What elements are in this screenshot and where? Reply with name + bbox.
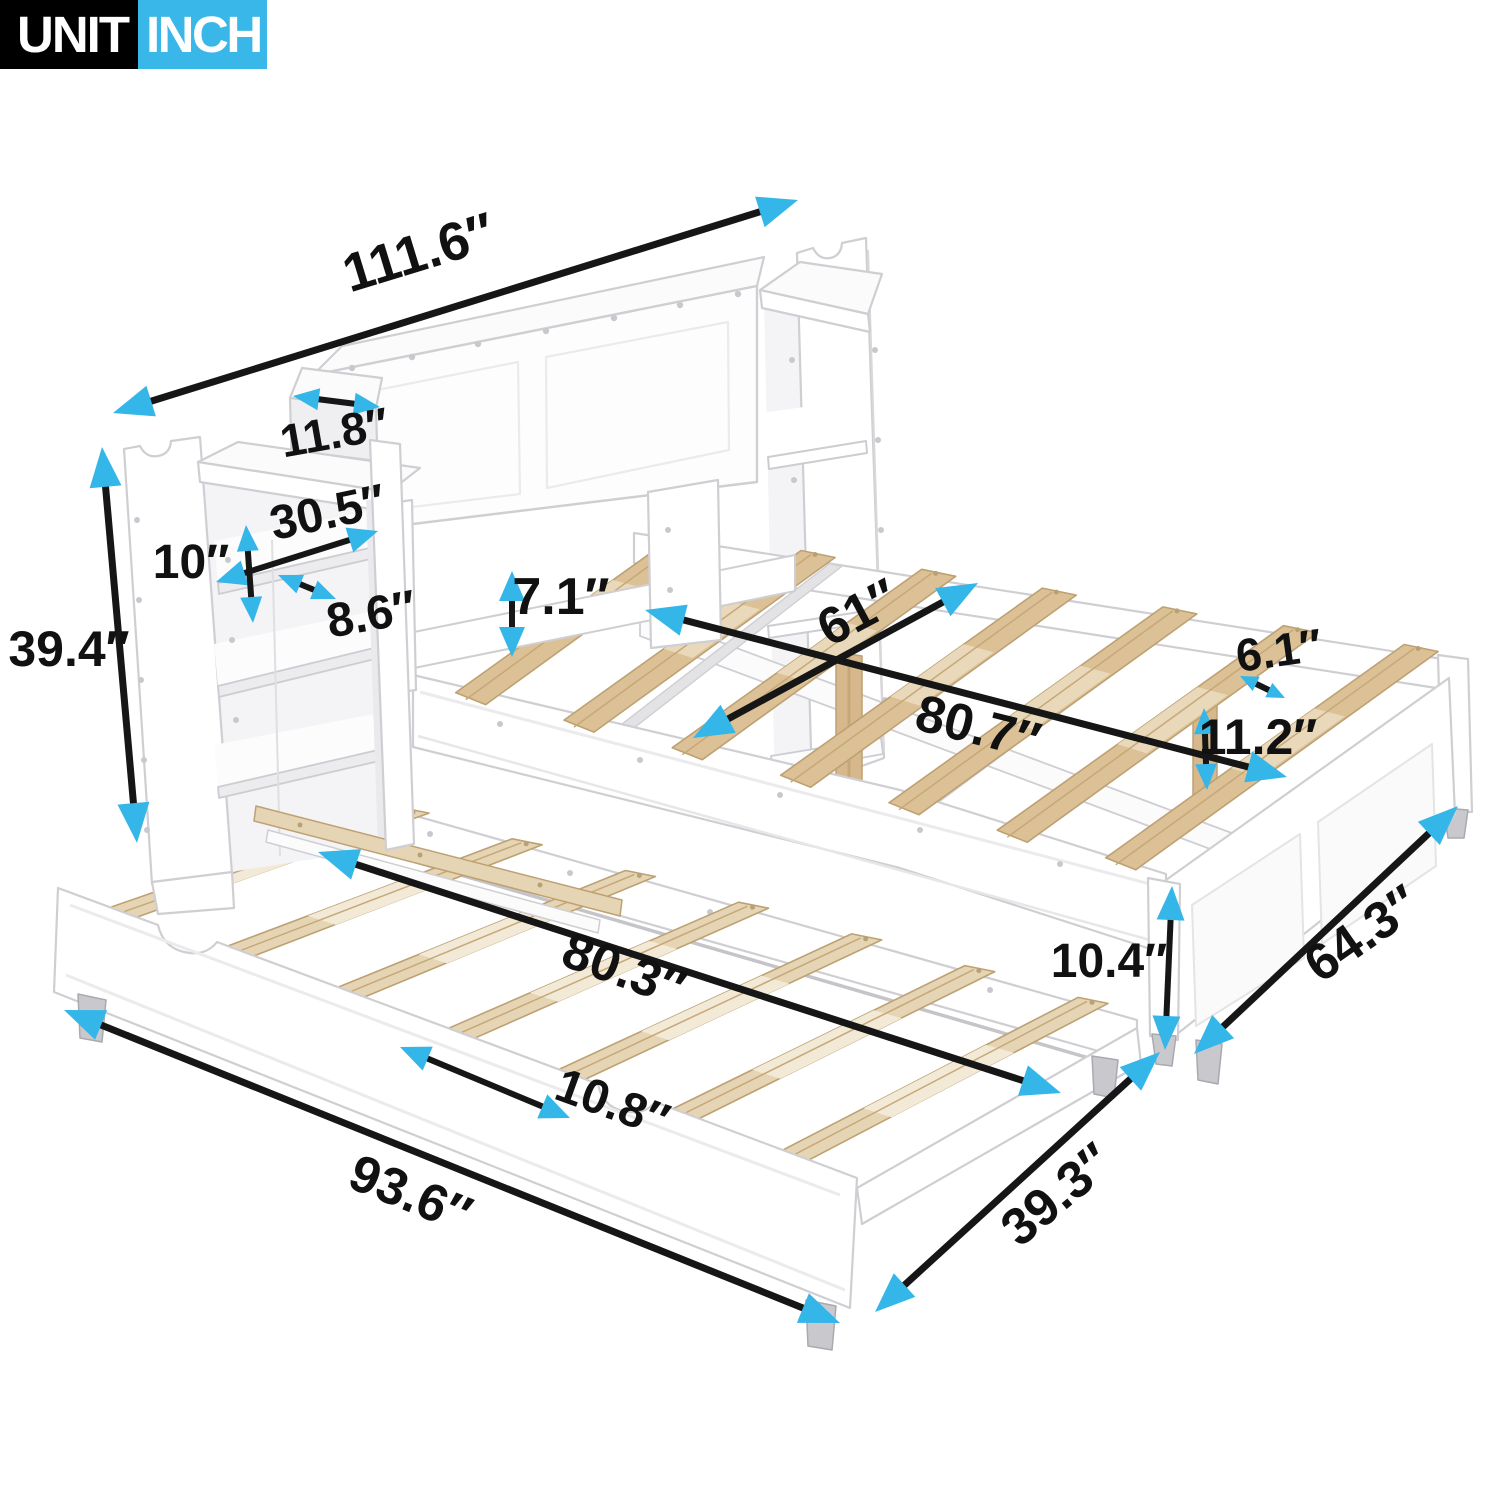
svg-text:INCH: INCH	[146, 6, 261, 63]
svg-text:7.1″: 7.1″	[512, 568, 609, 626]
svg-text:10.4″: 10.4″	[1051, 935, 1167, 988]
svg-text:11.2″: 11.2″	[1199, 709, 1318, 765]
svg-text:39.4″: 39.4″	[8, 621, 129, 677]
svg-text:UNIT: UNIT	[17, 6, 130, 63]
svg-text:10″: 10″	[153, 536, 229, 589]
